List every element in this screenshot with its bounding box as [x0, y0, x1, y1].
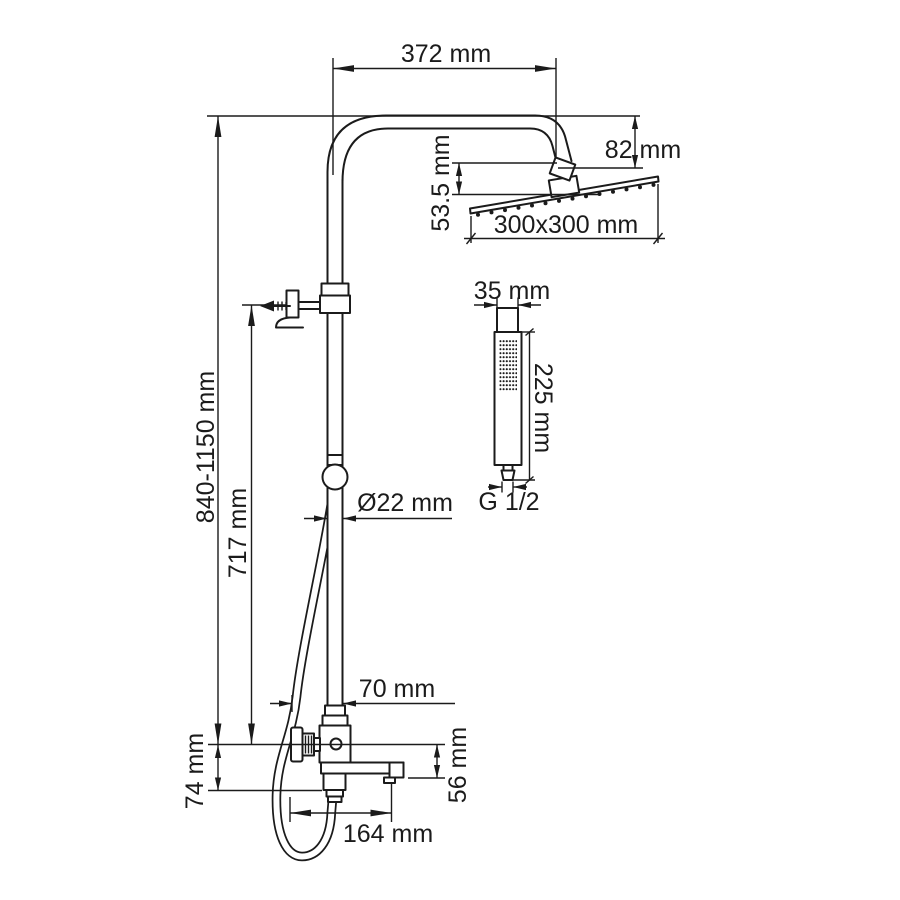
shower-technical-diagram: 372 mm 82 mm 53.5 mm 300x300 mm 35 mm 22…: [0, 0, 900, 900]
dim-label-spout-drop: 56 mm: [444, 727, 472, 803]
fixing-screw: [260, 301, 290, 312]
hose-outlet: [324, 774, 346, 803]
bracket-hook: [276, 318, 303, 328]
dim-label-head-size: 300x300 mm: [494, 211, 639, 239]
hand-shower-spray-face: [500, 339, 518, 392]
dim-label-head-connection: 53.5 mm: [427, 134, 455, 231]
spout-aerator: [384, 778, 395, 784]
hand-shower-detail: [495, 308, 522, 480]
shower-head: [470, 157, 659, 216]
dim-label-pipe-diameter: Ø22 mm: [357, 489, 453, 517]
dim-label-bracket-height: 717 mm: [224, 488, 252, 578]
riser-pipe: [328, 180, 343, 710]
dim-label-hose-thread: G 1/2: [478, 488, 539, 516]
dim-label-head-drop: 82 mm: [605, 136, 681, 164]
shower-hose: [276, 487, 334, 857]
handshower-holder-ball-joint: [323, 455, 348, 490]
dim-label-handshower-width: 35 mm: [474, 277, 550, 305]
dim-label-pipe-offset: 70 mm: [359, 675, 435, 703]
dim-label-arm-reach: 372 mm: [401, 40, 491, 68]
dim-spout-drop: [408, 745, 445, 779]
diagram-canvas: 372 mm 82 mm 53.5 mm 300x300 mm 35 mm 22…: [0, 0, 900, 900]
mixer: [291, 706, 404, 803]
hand-shower-grip: [497, 308, 518, 332]
dim-label-handshower-length: 225 mm: [529, 363, 557, 453]
dim-label-spout-reach: 164 mm: [343, 820, 433, 848]
dim-label-mixer-center-height: 74 mm: [181, 733, 209, 809]
hand-shower-thread: [502, 471, 515, 481]
dim-label-column-height: 840-1150 mm: [192, 371, 220, 523]
